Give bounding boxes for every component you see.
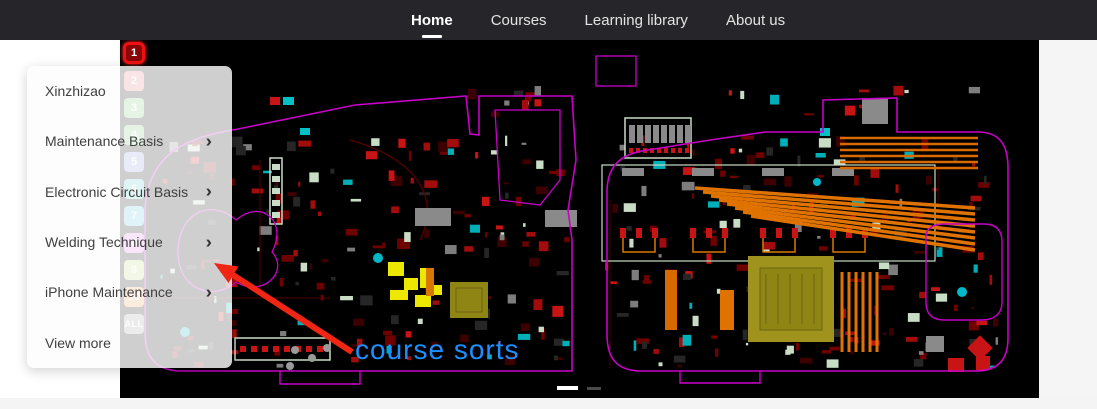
menu-item-label: View more: [45, 335, 111, 351]
nav-item-learning-library[interactable]: Learning library: [566, 0, 707, 40]
page-background-right: [1039, 40, 1097, 398]
nav-item-label: Home: [411, 12, 453, 29]
page: Home Courses Learning library About us 1…: [0, 0, 1097, 409]
nav-item-label: Courses: [491, 12, 547, 29]
chevron-right-icon: ›: [206, 183, 212, 200]
slide-square[interactable]: 1: [123, 42, 145, 64]
menu-item-label: iPhone Maintenance: [45, 284, 173, 300]
nav-item-label: About us: [726, 12, 785, 29]
chevron-right-icon: ›: [206, 234, 212, 251]
menu-item-maintenance-basis[interactable]: Maintenance Basis ›: [27, 116, 232, 166]
nav-item-courses[interactable]: Courses: [472, 0, 566, 40]
page-background-bottom: [0, 398, 1097, 409]
chevron-right-icon: ›: [206, 133, 212, 150]
menu-item-iphone-maintenance[interactable]: iPhone Maintenance ›: [27, 267, 232, 317]
chevron-right-icon: ›: [206, 284, 212, 301]
menu-item-welding-technique[interactable]: Welding Technique ›: [27, 217, 232, 267]
annotation-label: course sorts: [355, 334, 520, 366]
hero-carousel-slide: [120, 40, 1039, 398]
menu-item-label: Electronic Circuit Basis: [45, 184, 188, 200]
carousel-dash-inactive[interactable]: [587, 387, 601, 390]
course-category-menu: Xinzhizao › Maintenance Basis › Electron…: [27, 66, 232, 368]
carousel-dash-active[interactable]: [557, 386, 578, 390]
nav-item-label: Learning library: [585, 12, 688, 29]
menu-item-label: Welding Technique: [45, 234, 163, 250]
menu-item-electronic-circuit-basis[interactable]: Electronic Circuit Basis ›: [27, 167, 232, 217]
nav-item-about-us[interactable]: About us: [707, 0, 804, 40]
menu-item-view-more[interactable]: View more ›: [27, 318, 232, 368]
menu-item-label: Xinzhizao: [45, 83, 106, 99]
menu-item-xinzhizao[interactable]: Xinzhizao ›: [27, 66, 232, 116]
active-tab-indicator: [422, 35, 442, 38]
pcb-board-image: [120, 40, 1039, 398]
menu-item-label: Maintenance Basis: [45, 133, 163, 149]
nav-item-home[interactable]: Home: [392, 0, 472, 40]
top-navbar: Home Courses Learning library About us: [0, 0, 1097, 40]
